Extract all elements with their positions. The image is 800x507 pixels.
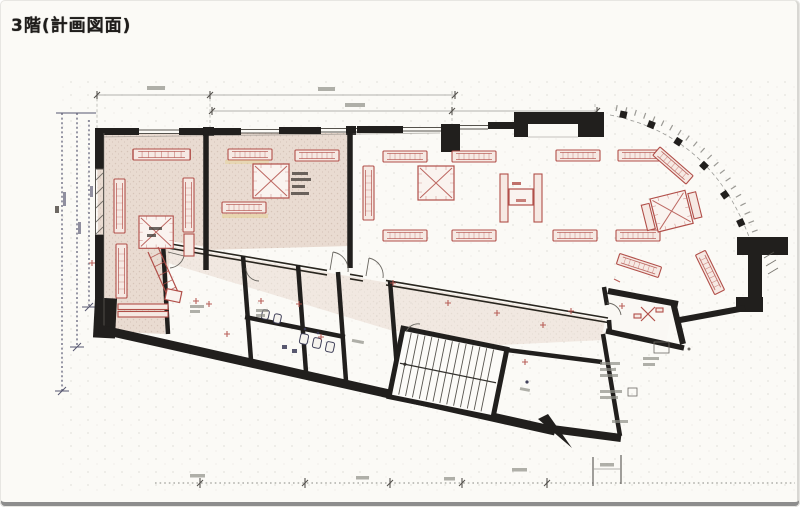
scanned-floor-plan-page: 3階(計画図面) (0, 0, 800, 507)
display-rack (452, 230, 496, 241)
column (619, 110, 627, 118)
display-rack (222, 202, 266, 213)
display-rack (383, 230, 427, 241)
display-rack (295, 150, 339, 161)
display-rack (133, 149, 190, 160)
x-box-shaft (418, 166, 454, 200)
x-box-shaft (253, 164, 289, 198)
x-box-shaft (139, 216, 173, 248)
display-rack (556, 150, 600, 161)
display-rack (118, 312, 168, 318)
display-rack (452, 151, 496, 162)
display-rack (114, 179, 125, 233)
display-rack (116, 244, 127, 298)
display-rack (183, 178, 194, 232)
display-rack (363, 166, 374, 220)
wall-pier (441, 124, 460, 152)
display-rack (616, 230, 660, 241)
floor-plan-drawing (0, 0, 800, 507)
display-rack (383, 151, 427, 162)
display-rack (184, 234, 194, 256)
display-rack (228, 149, 272, 160)
display-rack (118, 304, 168, 310)
display-rack (553, 230, 597, 241)
